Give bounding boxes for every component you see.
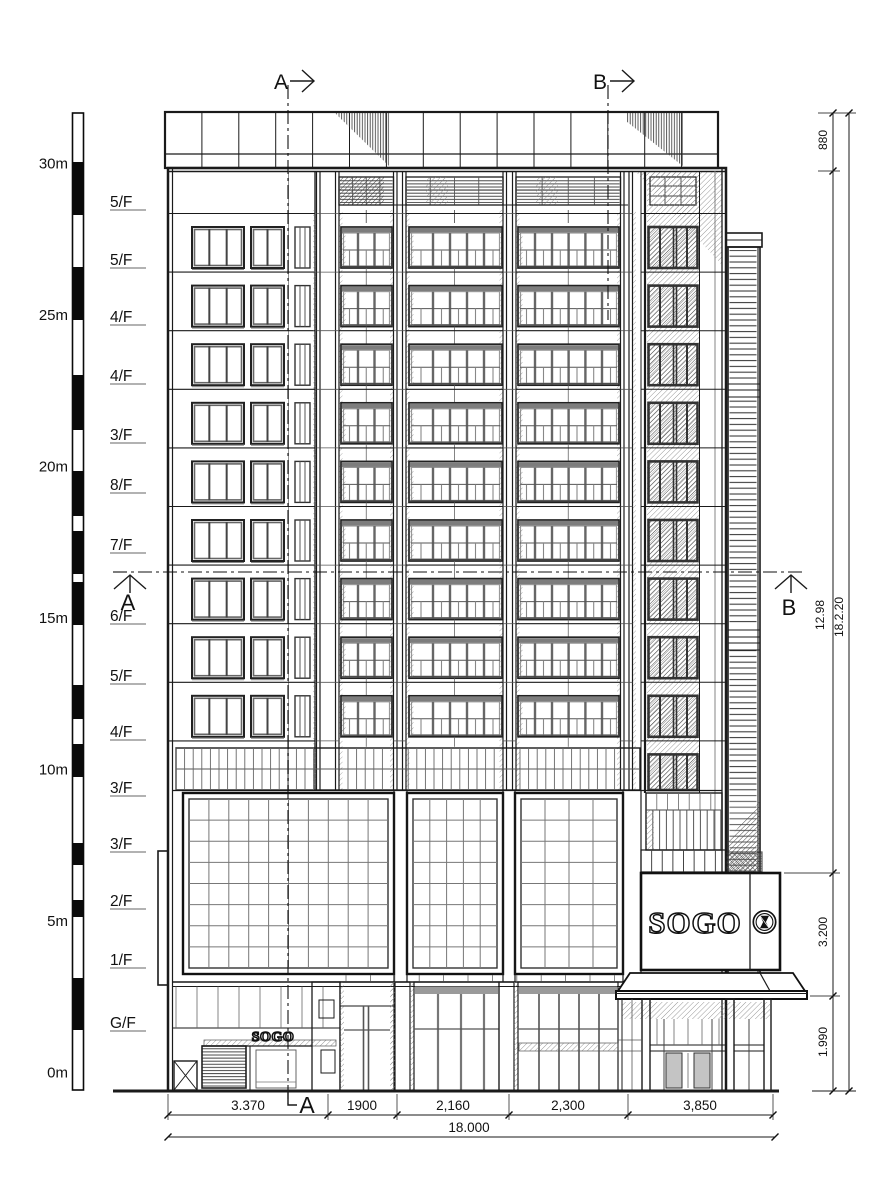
svg-text:880: 880	[816, 130, 830, 150]
svg-text:B: B	[593, 71, 607, 94]
svg-text:5/F: 5/F	[110, 194, 132, 211]
svg-text:2/F: 2/F	[110, 893, 132, 910]
svg-text:10m: 10m	[39, 762, 68, 779]
svg-text:A: A	[299, 1092, 315, 1118]
svg-text:3.370: 3.370	[231, 1098, 265, 1113]
svg-text:5/F: 5/F	[110, 252, 132, 269]
svg-text:4/F: 4/F	[110, 724, 132, 741]
svg-text:G/F: G/F	[110, 1015, 136, 1032]
svg-text:4/F: 4/F	[110, 309, 132, 326]
svg-text:4/F: 4/F	[110, 368, 132, 385]
svg-text:1/F: 1/F	[110, 952, 132, 969]
svg-text:3/F: 3/F	[110, 427, 132, 444]
svg-text:3,850: 3,850	[683, 1098, 717, 1113]
svg-text:25m: 25m	[39, 307, 68, 324]
svg-text:3/F: 3/F	[110, 836, 132, 853]
svg-text:8/F: 8/F	[110, 477, 132, 494]
svg-text:5m: 5m	[47, 913, 68, 930]
svg-text:12.98: 12.98	[813, 600, 827, 630]
svg-text:3/F: 3/F	[110, 780, 132, 797]
svg-text:15m: 15m	[39, 610, 68, 627]
svg-text:5/F: 5/F	[110, 668, 132, 685]
svg-text:1900: 1900	[347, 1098, 377, 1113]
svg-text:2,160: 2,160	[436, 1098, 470, 1113]
svg-text:18.2.20: 18.2.20	[832, 597, 846, 637]
svg-text:2,300: 2,300	[551, 1098, 585, 1113]
svg-text:18.000: 18.000	[448, 1120, 489, 1135]
svg-text:1.990: 1.990	[816, 1027, 830, 1057]
svg-text:B: B	[782, 595, 797, 620]
svg-text:30m: 30m	[39, 156, 68, 173]
svg-text:A: A	[274, 71, 288, 94]
svg-text:A: A	[121, 590, 136, 615]
svg-text:SOGO: SOGO	[648, 905, 742, 940]
svg-text:0m: 0m	[47, 1065, 68, 1082]
svg-text:20m: 20m	[39, 459, 68, 476]
svg-text:3.200: 3.200	[816, 917, 830, 947]
svg-text:7/F: 7/F	[110, 537, 132, 554]
